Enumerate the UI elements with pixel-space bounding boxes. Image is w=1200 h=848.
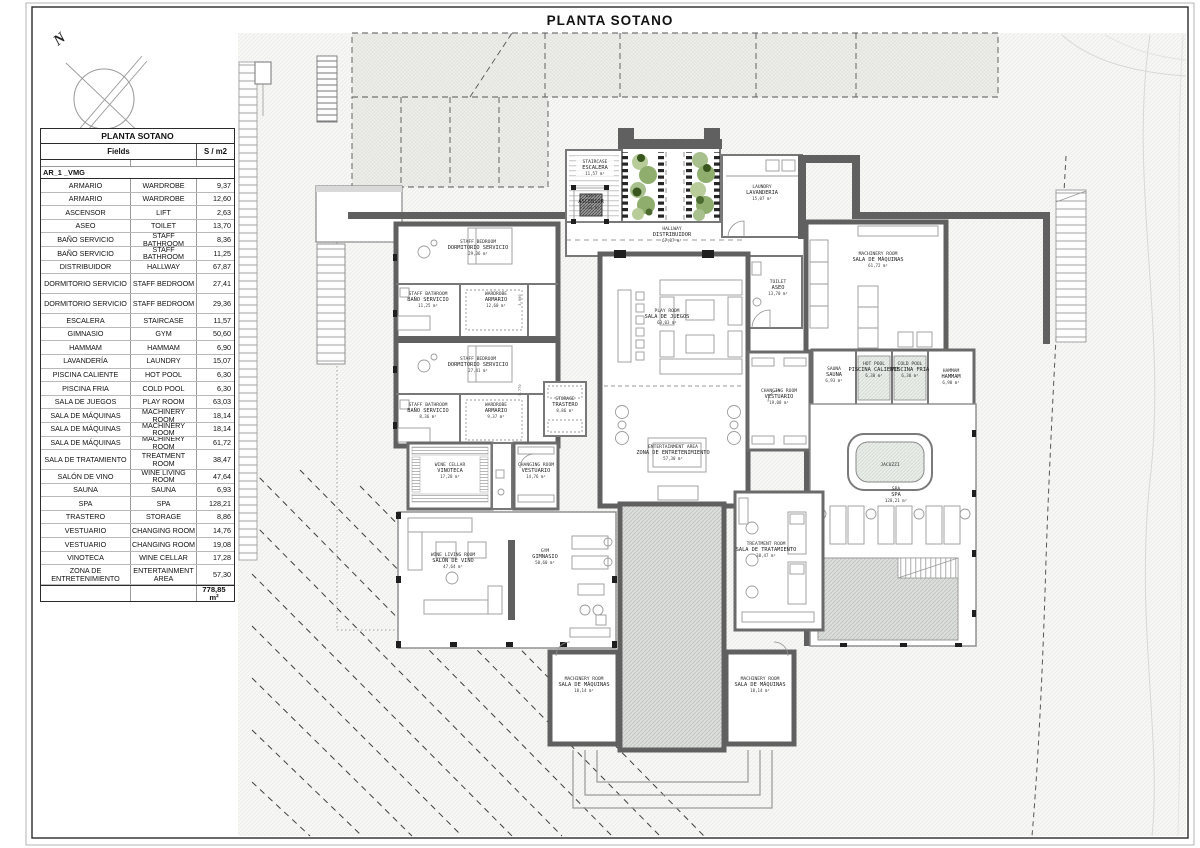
room-label-text: 6,90 m²: [942, 380, 959, 385]
table-cell-en: LAUNDRY: [131, 355, 197, 368]
table-row: ASEOTOILET13,70: [41, 220, 234, 234]
table-cell-en: HALLWAY: [131, 261, 197, 274]
room-label-text: 11,57 m²: [585, 171, 605, 176]
room-label-text: 12,60 m²: [486, 303, 506, 308]
table-cell-area: 13,70: [197, 220, 234, 233]
table-cell-es: DISTRIBUIDOR: [41, 261, 131, 274]
table-row: PISCINA FRIACOLD POOL6,30: [41, 382, 234, 396]
table-cell-en: SAUNA: [131, 484, 197, 497]
table-row: DISTRIBUIDORHALLWAY67,87: [41, 261, 234, 275]
table-cell-es: VINOTECA: [41, 552, 131, 565]
table-row: TRASTEROSTORAGE8,86: [41, 511, 234, 525]
room-label-text: HALLWAY: [662, 226, 682, 232]
table-cell-en: ENTERTAINMENT AREA: [131, 565, 197, 584]
room-label-text: 27,41 m²: [468, 368, 488, 373]
table-title: PLANTA SOTANO: [41, 129, 234, 144]
table-cell-en: PLAY ROOM: [131, 396, 197, 409]
table-cell-en: STAIRCASE: [131, 314, 197, 327]
table-cell-en: TOILET: [131, 220, 197, 233]
table-group-header: AR_1 _VMG: [41, 167, 234, 179]
table-cell-es: PISCINA CALIENTE: [41, 369, 131, 382]
room-label-text: 47,64 m²: [443, 564, 463, 569]
room-label-text: 8,36 m²: [419, 414, 436, 419]
table-cell-area: 11,57: [197, 314, 234, 327]
table-cell-area: 6,30: [197, 369, 234, 382]
table-cell-area: 38,47: [197, 450, 234, 469]
grating: [622, 152, 628, 220]
garden-stair-west: [317, 244, 345, 364]
spa-loungers: [816, 506, 970, 544]
table-cell-area: 128,21: [197, 497, 234, 510]
table-cell-es: DORMITORIO SERVICIO: [41, 294, 131, 313]
table-cell-en: STORAGE: [131, 511, 197, 524]
room-label-text: STAFF BATHROOM: [409, 402, 448, 408]
table-cell-en: MACHINERY ROOM: [131, 409, 197, 422]
dimension-label: 3.000: [517, 294, 522, 306]
room-label-text: 2,63 m²: [582, 205, 599, 210]
room-label-text: 18,14 m²: [574, 688, 594, 693]
jacuzzi-label: JACUZZI: [880, 462, 900, 468]
pool-strip: [620, 504, 724, 750]
table-cell-area: 8,86: [197, 511, 234, 524]
table-row: SALÓN DE VINOWINE LIVING ROOM47,64: [41, 470, 234, 484]
room-label-text: 13,70 m²: [768, 291, 788, 296]
room-label-text: TOILET: [770, 279, 787, 285]
table-total-row: 778,85 m²: [41, 585, 234, 601]
table-cell-area: 47,64: [197, 470, 234, 483]
sheet-title: PLANTA SOTANO: [547, 13, 674, 28]
garden-stair-east: [1056, 190, 1086, 342]
table-cell-area: 19,08: [197, 538, 234, 551]
room-label-text: 6,30 m²: [901, 373, 918, 378]
room-label-staircase: STAIRCASEESCALERA11,57 m²: [582, 159, 608, 176]
room-label-text: TREATMENT ROOM: [747, 541, 786, 547]
table-row: VESTUARIOCHANGING ROOM14,76: [41, 524, 234, 538]
room-label-text: WARDROBE: [485, 402, 507, 408]
room-label-text: 17,28 m²: [440, 474, 460, 479]
room-label-text: 6,93 m²: [825, 378, 842, 383]
drain-box: [255, 62, 271, 84]
drawing-sheet: 3.000 5.770 STAIRCASEESCALERA11,57 m² LI…: [0, 0, 1200, 848]
table-cell-area: 61,72: [197, 437, 234, 450]
table-cell-es: SALA DE JUEGOS: [41, 396, 131, 409]
machinery-room-bl: [550, 652, 618, 744]
table-cell-area: 18,14: [197, 423, 234, 436]
table-cell-area: 29,36: [197, 294, 234, 313]
table-cell-en: HAMMAM: [131, 341, 197, 354]
table-cell-area: 11,25: [197, 247, 234, 260]
table-row: SAUNASAUNA6,93: [41, 484, 234, 498]
table-cell-en: GYM: [131, 328, 197, 341]
grating: [658, 152, 664, 220]
table-cell-es: HAMMAM: [41, 341, 131, 354]
hillside-stair-west: [239, 62, 257, 560]
room-label-sauna: SAUNASAUNA6,93 m²: [825, 366, 842, 383]
table-row: SALA DE MÁQUINASMACHINERY ROOM18,14: [41, 409, 234, 423]
room-label-text: LIFT: [585, 193, 596, 199]
room-label-text: 61,72 m²: [868, 263, 888, 268]
room-label-hammam: HAMMAMHAMMAM6,90 m²: [941, 368, 960, 385]
room-label-text: 128,21 m²: [885, 498, 907, 503]
table-cell-es: BAÑO SERVICIO: [41, 233, 131, 246]
room-label-text: 14,76 m²: [526, 474, 546, 479]
room-label-text: SAUNA: [827, 366, 841, 372]
table-cell-en: STAFF BEDROOM: [131, 274, 197, 293]
table-cell-en: CHANGING ROOM: [131, 524, 197, 537]
table-cell-en: MACHINERY ROOM: [131, 437, 197, 450]
table-cell-es: SALA DE MÁQUINAS: [41, 423, 131, 436]
table-cell-es: VESTUARIO: [41, 538, 131, 551]
table-cell-area: 9,37: [197, 179, 234, 192]
table-row: SALA DE MÁQUINASMACHINERY ROOM18,14: [41, 423, 234, 437]
table-row: SPASPA128,21: [41, 497, 234, 511]
table-row: DORMITORIO SERVICIOSTAFF BEDROOM27,41: [41, 274, 234, 294]
table-cell-en: WINE CELLAR: [131, 552, 197, 565]
table-cell-es: SALÓN DE VINO: [41, 470, 131, 483]
table-row: DORMITORIO SERVICIOSTAFF BEDROOM29,36: [41, 294, 234, 314]
table-cell-en: LIFT: [131, 206, 197, 219]
table-row: ESCALERASTAIRCASE11,57: [41, 314, 234, 328]
table-cell-es: SALA DE MÁQUINAS: [41, 409, 131, 422]
table-row: ASCENSORLIFT2,63: [41, 206, 234, 220]
room-label-text: STAFF BATHROOM: [409, 291, 448, 297]
table-cell-es: BAÑO SERVICIO: [41, 247, 131, 260]
table-cell-es: GIMNASIO: [41, 328, 131, 341]
room-label-text: SPA: [892, 486, 901, 492]
room-label-text: 63,03 m²: [657, 320, 677, 325]
room-label-text: WINE CELLAR: [435, 462, 466, 468]
table-cell-es: ZONA DE ENTRETENIMIENTO: [41, 565, 131, 584]
table-cell-es: ASEO: [41, 220, 131, 233]
room-label-text: 6,30 m²: [865, 373, 882, 378]
table-row: BAÑO SERVICIOSTAFF BATHROOM11,25: [41, 247, 234, 261]
table-body: ARMARIOWARDROBE9,37ARMARIOWARDROBE12,60A…: [41, 179, 234, 585]
room-label-text: COLD POOL: [898, 361, 923, 367]
table-cell-area: 18,14: [197, 409, 234, 422]
room-label-text: 11,25 m²: [418, 303, 438, 308]
north-label: N: [50, 29, 70, 50]
table-cell-area: 14,76: [197, 524, 234, 537]
table-cell-es: VESTUARIO: [41, 524, 131, 537]
room-label-text: GYM: [541, 548, 550, 554]
room-label-text: 15,07 m²: [752, 196, 772, 201]
room-label-text: CHANGING ROOM: [518, 462, 554, 468]
table-cell-es: DORMITORIO SERVICIO: [41, 274, 131, 293]
room-label-text: 67,87 m²: [662, 238, 682, 243]
table-row: SALA DE JUEGOSPLAY ROOM63,03: [41, 396, 234, 410]
room-label-text: 29,36 m²: [468, 251, 488, 256]
table-header: Fields S / m2: [41, 144, 234, 160]
table-cell-es: SAUNA: [41, 484, 131, 497]
table-row: SALA DE TRATAMIENTOTREATMENT ROOM38,47: [41, 450, 234, 470]
table-cell-es: ARMARIO: [41, 193, 131, 206]
grating: [714, 152, 720, 220]
room-label-text: LAUNDRY: [752, 184, 772, 190]
table-cell-area: 63,03: [197, 396, 234, 409]
room-label-text: STAFF BEDROOM: [460, 239, 496, 245]
room-label-text: CHANGING ROOM: [761, 388, 797, 394]
table-cell-es: SALA DE MÁQUINAS: [41, 437, 131, 450]
table-cell-es: SALA DE TRATAMIENTO: [41, 450, 131, 469]
table-cell-area: 6,30: [197, 382, 234, 395]
table-cell-en: CHANGING ROOM: [131, 538, 197, 551]
room-label-text: 50,60 m²: [535, 560, 555, 565]
room-label-wardrobe-1: WARDROBEARMARIO12,60 m²: [485, 291, 507, 308]
room-label-text: STORAGE: [555, 396, 575, 402]
room-label-text: MACHINERY ROOM: [565, 676, 604, 682]
table-cell-es: TRASTERO: [41, 511, 131, 524]
table-row: ZONA DE ENTRETENIMIENTOENTERTAINMENT ARE…: [41, 565, 234, 585]
table-cell-en: MACHINERY ROOM: [131, 423, 197, 436]
room-label-text: PLAY ROOM: [655, 308, 680, 314]
table-row: SALA DE MÁQUINASMACHINERY ROOM61,72: [41, 437, 234, 451]
table-cell-es: LAVANDERÍA: [41, 355, 131, 368]
table-cell-en: WARDROBE: [131, 193, 197, 206]
table-row: VINOTECAWINE CELLAR17,28: [41, 552, 234, 566]
room-label-text: 18,14 m²: [750, 688, 770, 693]
table-cell-en: SPA: [131, 497, 197, 510]
total-area-value: 778,85 m²: [197, 586, 234, 601]
column-header-area: S / m2: [197, 144, 234, 159]
table-cell-area: 15,07: [197, 355, 234, 368]
room-label-text: STAIRCASE: [583, 159, 608, 165]
room-label-text: HAMMAM: [943, 368, 960, 374]
table-row: LAVANDERÍALAUNDRY15,07: [41, 355, 234, 369]
table-spacer-row: [41, 160, 234, 167]
table-cell-area: 8,36: [197, 233, 234, 246]
table-row: ARMARIOWARDROBE12,60: [41, 193, 234, 207]
table-cell-area: 27,41: [197, 274, 234, 293]
table-cell-en: HOT POOL: [131, 369, 197, 382]
room-label-text: WINE LIVING ROOM: [431, 552, 475, 558]
room-label-text: HOT POOL: [863, 361, 885, 367]
dimension-label: 5.770: [517, 384, 522, 396]
table-cell-es: ARMARIO: [41, 179, 131, 192]
table-cell-es: SPA: [41, 497, 131, 510]
machinery-room-br: [726, 652, 794, 744]
table-cell-es: PISCINA FRIA: [41, 382, 131, 395]
table-row: ARMARIOWARDROBE9,37: [41, 179, 234, 193]
table-cell-area: 6,93: [197, 484, 234, 497]
room-label-wardrobe-2: WARDROBEARMARIO9,37 m²: [485, 402, 507, 419]
table-row: BAÑO SERVICIOSTAFF BATHROOM8,36: [41, 233, 234, 247]
table-cell-es: ASCENSOR: [41, 206, 131, 219]
table-cell-area: 67,87: [197, 261, 234, 274]
table-cell-en: STAFF BATHROOM: [131, 233, 197, 246]
table-cell-area: 6,90: [197, 341, 234, 354]
area-table: PLANTA SOTANO Fields S / m2 AR_1 _VMG AR…: [40, 128, 235, 602]
room-label-text: WARDROBE: [485, 291, 507, 297]
table-cell-en: TREATMENT ROOM: [131, 450, 197, 469]
column-header-fields: Fields: [41, 144, 197, 159]
room-label-text: 9,37 m²: [487, 414, 504, 419]
table-row: GIMNASIOGYM50,60: [41, 328, 234, 342]
room-label-text: MACHINERY ROOM: [741, 676, 780, 682]
table-cell-en: STAFF BATHROOM: [131, 247, 197, 260]
table-cell-en: STAFF BEDROOM: [131, 294, 197, 313]
room-label-text: 38,47 m²: [756, 553, 776, 558]
room-label-text: STAFF BEDROOM: [460, 356, 496, 362]
table-cell-en: WINE LIVING ROOM: [131, 470, 197, 483]
room-label-text: ENTERTAINMENT AREA: [648, 444, 698, 450]
bar-counter: [618, 290, 631, 362]
table-row: PISCINA CALIENTEHOT POOL6,30: [41, 369, 234, 383]
room-label-text: 8,86 m²: [556, 408, 573, 413]
table-cell-area: 50,60: [197, 328, 234, 341]
table-cell-area: 57,30: [197, 565, 234, 584]
table-cell-en: COLD POOL: [131, 382, 197, 395]
room-label-text: 57,30 m²: [663, 456, 683, 461]
table-cell-area: 17,28: [197, 552, 234, 565]
table-row: HAMMAMHAMMAM6,90: [41, 341, 234, 355]
table-cell-es: ESCALERA: [41, 314, 131, 327]
table-row: VESTUARIOCHANGING ROOM19,08: [41, 538, 234, 552]
table-cell-area: 12,60: [197, 193, 234, 206]
room-label-text: 19,08 m²: [769, 400, 789, 405]
room-label-text: MACHINERY ROOM: [859, 251, 898, 257]
stair-north-west: [317, 56, 337, 122]
table-cell-area: 2,63: [197, 206, 234, 219]
table-cell-en: WARDROBE: [131, 179, 197, 192]
